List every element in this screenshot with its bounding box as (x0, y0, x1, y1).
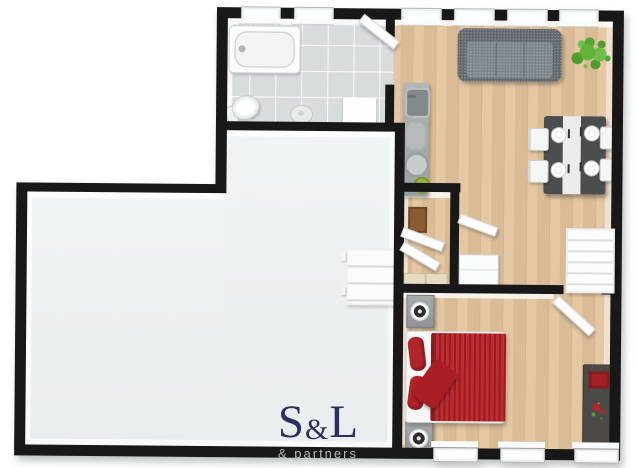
window (500, 448, 545, 463)
hallway-dresser (459, 254, 499, 286)
wall (393, 284, 563, 294)
plate (551, 127, 567, 143)
flower-decoration (592, 403, 600, 411)
cooking-pot (405, 153, 429, 177)
sofa-cushion-divider (495, 43, 496, 77)
plate (584, 125, 600, 141)
kitchen-faucet (407, 95, 416, 98)
window-sill (399, 20, 442, 25)
window-sill (498, 442, 545, 448)
wall (16, 182, 226, 193)
shower-mat (343, 97, 376, 123)
window-sill (292, 19, 334, 24)
window-sill (572, 442, 619, 448)
floor-plan (0, 0, 637, 468)
dining-chair (528, 128, 549, 151)
plate (550, 162, 566, 178)
window (433, 447, 478, 462)
plate (584, 160, 600, 176)
table-runner (562, 116, 581, 194)
logo-letter-l: L (329, 399, 358, 446)
sofa-seat (466, 41, 552, 78)
kitchen-sink (405, 88, 430, 118)
double-bed (405, 331, 505, 424)
bedside-lamp (410, 302, 429, 321)
light-floor-large-room-lower (22, 189, 224, 448)
watermark-logo: S & L & partners (262, 399, 374, 460)
logo-ampersand: & (305, 415, 328, 446)
wall (449, 183, 459, 293)
sofa (457, 28, 561, 82)
potted-plant (580, 44, 596, 60)
red-tray (589, 371, 609, 388)
window-sill (452, 20, 495, 25)
cutlery (568, 164, 570, 173)
bathtub-faucet (239, 45, 246, 52)
floor-plan-screenshot: S & L & partners (0, 0, 637, 468)
pillow (407, 336, 427, 372)
logo-main: S & L (262, 399, 374, 446)
window-sill (505, 21, 548, 26)
cutlery (580, 127, 582, 136)
dining-chair (527, 160, 548, 183)
nightstand (406, 295, 434, 328)
wall (385, 85, 394, 128)
wall (223, 121, 399, 132)
cutlery (568, 129, 570, 138)
window (574, 448, 619, 463)
bathtub (228, 25, 300, 74)
bedside-lamp (409, 429, 428, 448)
wall-mounted-shelf (345, 248, 399, 305)
window-sill (239, 18, 281, 23)
cutlery (580, 162, 582, 171)
ladder-shelf (565, 228, 615, 293)
shelf-bracket (341, 252, 346, 261)
window-sill (557, 21, 599, 26)
logo-subtitle: & partners (262, 447, 374, 460)
logo-letter-s: S (278, 399, 304, 446)
wall (215, 7, 228, 193)
dining-table (543, 116, 606, 195)
window-sill (431, 441, 478, 447)
shelf-bracket (340, 286, 345, 295)
sofa-cushion-divider (523, 43, 524, 77)
dish-rack (405, 121, 427, 151)
kitchen-counter (402, 83, 429, 196)
